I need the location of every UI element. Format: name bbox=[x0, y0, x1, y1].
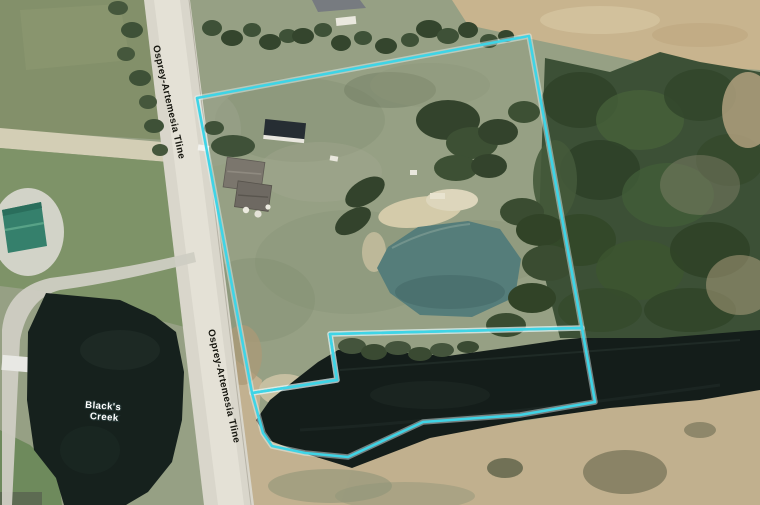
creek-label-line2: Creek bbox=[89, 411, 119, 424]
aerial-map: Osprey-Artemesia Tline Osprey-Artemesia … bbox=[0, 0, 760, 505]
green-roof-barn bbox=[2, 202, 47, 253]
sand-beach bbox=[426, 189, 478, 211]
patio-stone bbox=[254, 210, 261, 217]
dock-structure bbox=[1, 355, 29, 372]
shed bbox=[263, 119, 306, 143]
forest-right bbox=[533, 52, 760, 338]
patio-stone bbox=[243, 207, 249, 213]
aerial-map-image: Osprey-Artemesia Tline Osprey-Artemesia … bbox=[0, 0, 760, 505]
patio-stone bbox=[265, 204, 270, 209]
